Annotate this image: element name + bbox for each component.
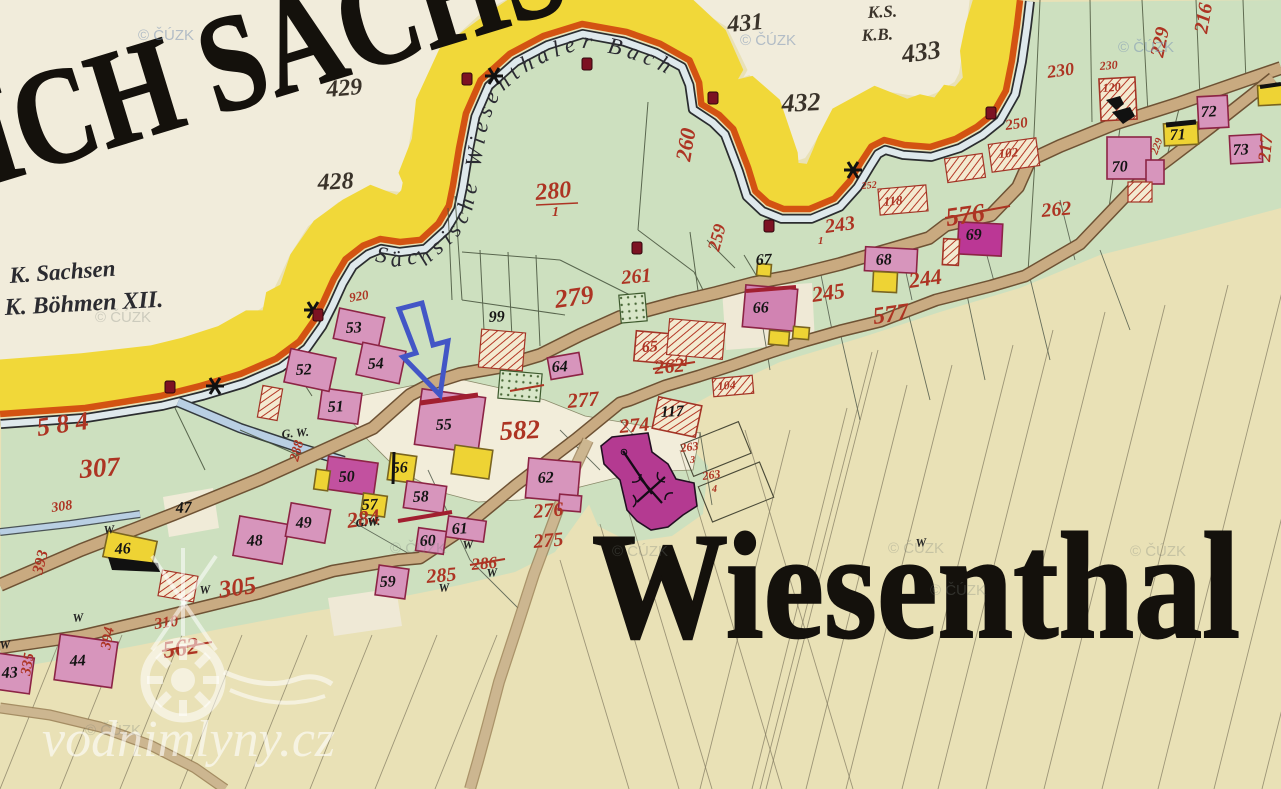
svg-text:276: 276 [532, 498, 565, 523]
svg-text:66: 66 [752, 299, 769, 317]
svg-text:© ČÚZK: © ČÚZK [1130, 543, 1186, 560]
svg-text:245: 245 [809, 278, 846, 307]
svg-text:73: 73 [1232, 141, 1249, 159]
svg-text:230: 230 [1045, 58, 1076, 82]
svg-text:68: 68 [875, 251, 892, 269]
svg-text:K.S.: K.S. [866, 1, 897, 22]
svg-text:217: 217 [1254, 133, 1276, 164]
svg-text:577: 577 [871, 299, 911, 330]
svg-text:G.W.: G.W. [355, 514, 381, 530]
svg-text:52: 52 [295, 361, 312, 379]
svg-text:43: 43 [0, 664, 18, 682]
svg-text:280: 280 [533, 177, 572, 206]
svg-text:46: 46 [113, 540, 131, 558]
svg-text:262: 262 [1040, 197, 1073, 222]
svg-text:120: 120 [1102, 79, 1121, 95]
svg-text:© ČÚZK: © ČÚZK [740, 32, 796, 49]
svg-text:49: 49 [294, 514, 312, 532]
svg-text:118: 118 [883, 192, 904, 209]
svg-text:Wiesenthal: Wiesenthal [592, 502, 1240, 670]
svg-text:104: 104 [717, 377, 736, 393]
svg-text:69: 69 [965, 226, 982, 244]
svg-text:© ČÚZK: © ČÚZK [138, 27, 194, 44]
svg-text:261: 261 [620, 264, 653, 289]
svg-text:59: 59 [379, 573, 396, 591]
svg-text:432: 432 [780, 87, 821, 118]
svg-text:308: 308 [49, 498, 73, 516]
svg-text:244: 244 [906, 264, 943, 293]
svg-text:307: 307 [77, 451, 122, 484]
svg-text:117: 117 [660, 403, 685, 421]
svg-text:263: 263 [700, 467, 721, 484]
svg-text:1: 1 [552, 205, 559, 220]
svg-text:72: 72 [1200, 103, 1217, 121]
svg-text:© ČÚZK: © ČÚZK [930, 582, 986, 599]
svg-text:56: 56 [391, 459, 408, 477]
svg-text:1: 1 [818, 235, 824, 247]
svg-text:61: 61 [451, 520, 468, 538]
svg-text:© ČÚZK: © ČÚZK [95, 309, 151, 326]
svg-text:99: 99 [488, 308, 505, 326]
svg-text:53: 53 [345, 319, 362, 337]
svg-text:230: 230 [1098, 57, 1118, 73]
svg-text:58: 58 [412, 488, 429, 506]
svg-text:65: 65 [641, 338, 658, 356]
svg-text:G. W.: G. W. [281, 425, 309, 441]
svg-text:© ČÚZK: © ČÚZK [390, 540, 446, 557]
svg-text:433: 433 [899, 35, 943, 69]
svg-text:70: 70 [1111, 158, 1128, 176]
svg-text:K.B.: K.B. [860, 24, 893, 45]
svg-text:582: 582 [499, 414, 541, 446]
svg-text:64: 64 [551, 358, 568, 376]
svg-text:277: 277 [565, 386, 601, 413]
svg-text:44: 44 [68, 652, 86, 670]
svg-text:55: 55 [435, 416, 452, 434]
svg-text:3: 3 [689, 455, 695, 466]
svg-text:62: 62 [537, 469, 554, 487]
svg-text:© ČÚZK: © ČÚZK [612, 543, 668, 560]
svg-text:252: 252 [860, 180, 877, 192]
svg-text:250: 250 [1003, 115, 1029, 134]
svg-text:279: 279 [552, 280, 596, 314]
svg-text:4: 4 [711, 484, 717, 495]
svg-text:428: 428 [316, 168, 354, 196]
svg-text:102: 102 [998, 144, 1019, 161]
svg-text:© ČÚZK: © ČÚZK [888, 540, 944, 557]
svg-text:67: 67 [755, 251, 773, 269]
svg-text:54: 54 [367, 355, 384, 373]
svg-text:305: 305 [216, 572, 258, 604]
svg-text:47: 47 [174, 499, 193, 517]
svg-text:© ČÚZK: © ČÚZK [1118, 39, 1174, 56]
svg-text:vodnimlyny.cz: vodnimlyny.cz [42, 711, 335, 768]
svg-text:263: 263 [678, 439, 699, 456]
svg-text:243: 243 [823, 212, 857, 238]
svg-text:51: 51 [327, 398, 344, 416]
svg-text:57: 57 [361, 496, 379, 514]
svg-text:275: 275 [532, 528, 565, 553]
svg-text:48: 48 [245, 532, 263, 550]
svg-text:50: 50 [338, 468, 355, 486]
svg-text:71: 71 [1169, 126, 1186, 144]
svg-text:274: 274 [618, 413, 651, 438]
